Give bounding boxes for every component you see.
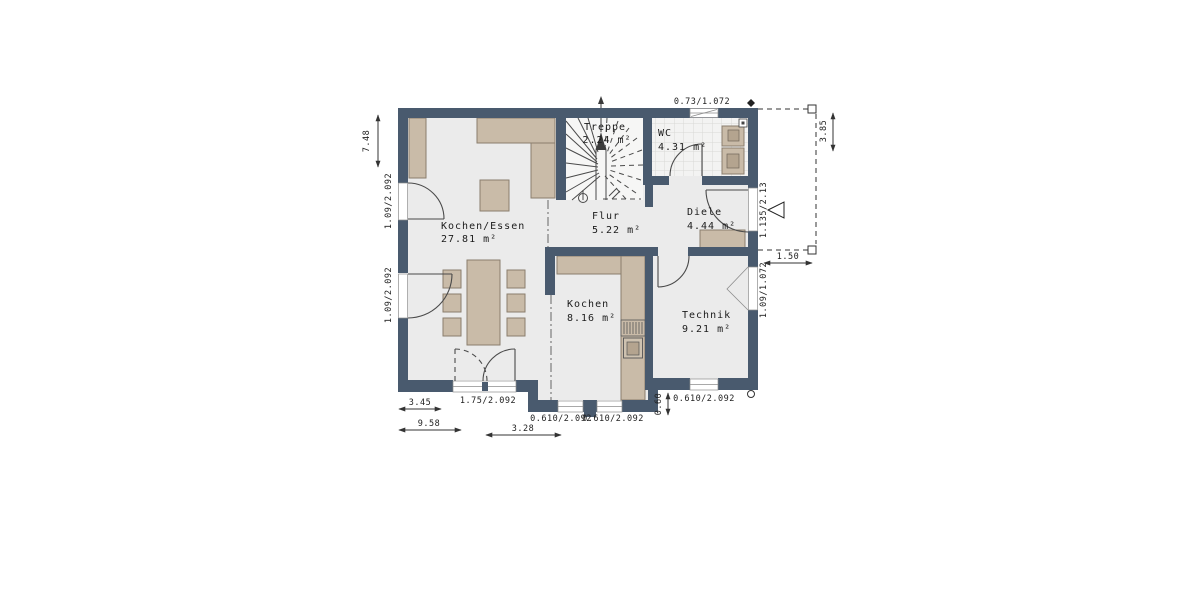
entry-door-opening (749, 188, 758, 231)
chair (507, 294, 525, 312)
dim-label-kochen-window-2: 0.610/2.092 (582, 414, 644, 424)
circle-marker-icon (748, 391, 755, 398)
porch-post-icon (808, 246, 816, 254)
room-label-kochen-area: 8.16 m² (567, 313, 616, 324)
dim-label-height-left: 7.48 (362, 130, 372, 152)
chair (507, 270, 525, 288)
chair (443, 318, 461, 336)
patio-door-opening (453, 381, 516, 392)
room-label-wc-name: WC (658, 128, 672, 139)
dim-label-technik-right-window: 1.09/1.072 (759, 262, 769, 318)
technik-bottom-window (690, 379, 718, 390)
dim-label-wc-window: 0.73/1.072 (674, 97, 730, 107)
room-label-treppe-area: 2.24 m² (582, 135, 631, 146)
room-label-kochen-essen-area: 27.81 m² (441, 234, 497, 245)
dim-label-3-45: 3.45 (409, 398, 431, 408)
porch-post-icon (808, 105, 816, 113)
room-label-kochen-name: Kochen (567, 299, 609, 310)
room-label-flur-name: Flur (592, 211, 620, 222)
room-label-treppe-name: Treppe (584, 122, 626, 133)
dim-label-entry-door: 1.135/2.13 (759, 182, 769, 238)
dining-table (467, 260, 500, 345)
kitchen-counter-top (557, 256, 621, 274)
kitchen-island (480, 180, 509, 211)
stove-icon (621, 320, 645, 358)
kochen-window-1 (558, 401, 583, 412)
dim-label-9-58: 9.58 (418, 419, 440, 429)
dim-label-left-lower-door: 1.09/2.092 (384, 267, 394, 323)
sideboard-left (409, 118, 426, 178)
room-label-diele-area: 4.44 m² (687, 221, 736, 232)
room-label-diele-name: Diele (687, 207, 722, 218)
wc-washbasin-icon (722, 126, 744, 146)
dim-label-porch-depth: 3.85 (819, 120, 829, 142)
room-label-technik-area: 9.21 m² (682, 324, 731, 335)
dim-label-3-28: 3.28 (512, 424, 534, 434)
wc-top-window (690, 109, 718, 118)
dim-label-technik-bottom-window: 0.610/2.092 (673, 394, 735, 404)
floor-plan-canvas: Kochen/Essen 27.81 m² Flur 5.22 m² Trepp… (0, 0, 1200, 600)
chair (507, 318, 525, 336)
dim-label-porch-width: 1.50 (777, 252, 799, 262)
dim-label-left-upper-door: 1.09/2.092 (384, 173, 394, 229)
floor-plan-page: Kochen/Essen 27.81 m² Flur 5.22 m² Trepp… (0, 0, 1200, 600)
diamond-marker-icon (747, 99, 755, 107)
room-label-technik-name: Technik (682, 310, 731, 321)
entrance-triangle-icon (768, 202, 784, 218)
room-label-kochen-essen-name: Kochen/Essen (441, 221, 525, 232)
counter-top-horizontal (477, 118, 555, 143)
left-upper-door-window (399, 183, 408, 220)
dim-label-patio-door: 1.75/2.092 (460, 396, 516, 406)
room-label-wc-area: 4.31 m² (658, 142, 707, 153)
wc-toilet-icon (722, 148, 744, 174)
left-lower-door-window (399, 274, 408, 318)
counter-top-vertical (531, 143, 555, 198)
kochen-window-2 (597, 401, 622, 412)
wc-fan-icon (739, 119, 747, 127)
dim-label-step-depth: 0.60 (654, 393, 664, 415)
room-label-flur-area: 5.22 m² (592, 225, 641, 236)
